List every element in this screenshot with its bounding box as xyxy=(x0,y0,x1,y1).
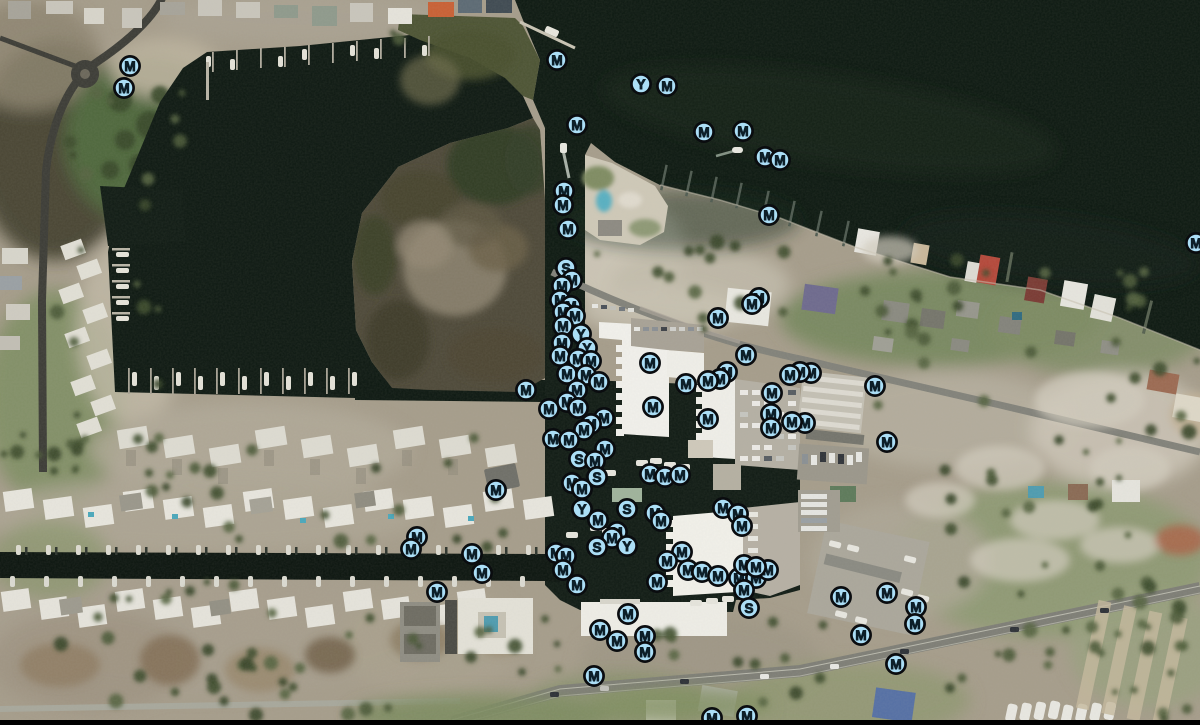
svg-text:Y: Y xyxy=(577,502,586,517)
svg-text:M: M xyxy=(661,79,672,94)
svg-text:M: M xyxy=(881,435,892,450)
svg-text:M: M xyxy=(706,711,717,720)
svg-text:M: M xyxy=(750,560,761,575)
svg-text:M: M xyxy=(869,379,880,394)
svg-text:M: M xyxy=(593,375,604,390)
svg-text:M: M xyxy=(909,617,920,632)
svg-text:M: M xyxy=(543,402,554,417)
svg-text:M: M xyxy=(557,198,568,213)
svg-text:M: M xyxy=(651,575,662,590)
svg-text:M: M xyxy=(855,628,866,643)
svg-text:M: M xyxy=(680,377,691,392)
svg-text:M: M xyxy=(717,501,728,516)
svg-text:Y: Y xyxy=(622,539,631,554)
svg-text:S: S xyxy=(744,601,753,616)
svg-text:M: M xyxy=(576,482,587,497)
svg-text:S: S xyxy=(622,502,631,517)
svg-text:Y: Y xyxy=(636,77,645,92)
svg-text:M: M xyxy=(1190,236,1200,251)
svg-text:M: M xyxy=(644,467,655,482)
svg-text:M: M xyxy=(562,222,573,237)
svg-text:M: M xyxy=(554,349,565,364)
svg-text:M: M xyxy=(702,412,713,427)
svg-text:M: M xyxy=(551,53,562,68)
svg-text:M: M xyxy=(676,545,687,560)
svg-text:M: M xyxy=(655,514,666,529)
svg-text:M: M xyxy=(759,150,770,165)
svg-text:M: M xyxy=(476,566,487,581)
svg-text:M: M xyxy=(890,657,901,672)
svg-text:M: M xyxy=(588,669,599,684)
svg-text:M: M xyxy=(557,319,568,334)
svg-text:M: M xyxy=(547,432,558,447)
svg-text:M: M xyxy=(712,311,723,326)
svg-text:M: M xyxy=(674,468,685,483)
svg-text:M: M xyxy=(572,401,583,416)
svg-text:M: M xyxy=(606,531,617,546)
svg-text:S: S xyxy=(574,452,583,467)
svg-text:M: M xyxy=(490,483,501,498)
svg-text:M: M xyxy=(702,374,713,389)
svg-text:M: M xyxy=(746,297,757,312)
svg-text:M: M xyxy=(644,356,655,371)
svg-text:M: M xyxy=(736,519,747,534)
svg-text:M: M xyxy=(571,578,582,593)
svg-text:M: M xyxy=(594,623,605,638)
svg-text:M: M xyxy=(766,386,777,401)
svg-text:M: M xyxy=(738,583,749,598)
svg-text:M: M xyxy=(765,421,776,436)
svg-text:M: M xyxy=(763,208,774,223)
svg-text:M: M xyxy=(698,125,709,140)
svg-text:M: M xyxy=(659,470,670,485)
svg-text:M: M xyxy=(571,118,582,133)
svg-text:M: M xyxy=(741,709,752,720)
svg-text:M: M xyxy=(696,565,707,580)
svg-text:M: M xyxy=(405,542,416,557)
svg-text:M: M xyxy=(835,590,846,605)
svg-text:M: M xyxy=(557,563,568,578)
svg-text:M: M xyxy=(712,569,723,584)
svg-text:M: M xyxy=(639,645,650,660)
svg-text:M: M xyxy=(661,554,672,569)
svg-text:M: M xyxy=(466,547,477,562)
svg-text:M: M xyxy=(592,513,603,528)
svg-text:M: M xyxy=(561,367,572,382)
svg-text:M: M xyxy=(647,400,658,415)
svg-text:M: M xyxy=(774,153,785,168)
svg-text:M: M xyxy=(622,607,633,622)
svg-text:S: S xyxy=(592,470,601,485)
svg-text:M: M xyxy=(740,348,751,363)
svg-text:M: M xyxy=(786,415,797,430)
svg-text:M: M xyxy=(520,383,531,398)
svg-text:M: M xyxy=(563,433,574,448)
svg-text:M: M xyxy=(784,368,795,383)
svg-text:M: M xyxy=(611,634,622,649)
svg-text:M: M xyxy=(118,81,129,96)
svg-text:M: M xyxy=(881,586,892,601)
svg-text:M: M xyxy=(910,600,921,615)
svg-text:M: M xyxy=(124,59,135,74)
svg-text:M: M xyxy=(737,124,748,139)
svg-text:M: M xyxy=(578,423,589,438)
svg-text:M: M xyxy=(431,585,442,600)
svg-text:S: S xyxy=(592,540,601,555)
